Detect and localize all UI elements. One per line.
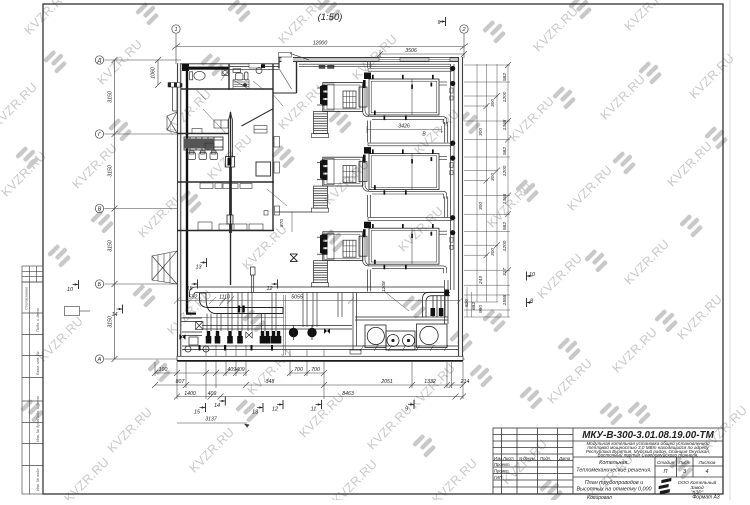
svg-text:300: 300 bbox=[490, 173, 496, 181]
svg-text:1400: 1400 bbox=[184, 391, 196, 397]
svg-text:Дата: Дата bbox=[558, 456, 571, 461]
svg-text:Взам. инв. №: Взам. инв. № bbox=[36, 352, 40, 375]
svg-text:700: 700 bbox=[294, 367, 303, 373]
svg-text:План трубопроводов и: План трубопроводов и bbox=[585, 480, 643, 486]
svg-text:Стадия: Стадия bbox=[657, 460, 675, 465]
svg-text:МКУ-В-300-3.01.08.19.00-ТМ: МКУ-В-300-3.01.08.19.00-ТМ bbox=[582, 430, 714, 441]
svg-text:300: 300 bbox=[490, 99, 496, 107]
svg-text:409: 409 bbox=[208, 391, 217, 397]
svg-text:Восточный портал Северомуйског: Восточный портал Северомуйского тоннеля. bbox=[598, 452, 699, 458]
svg-text:1208: 1208 bbox=[381, 281, 387, 292]
svg-text:2: 2 bbox=[461, 27, 465, 33]
svg-text:3150: 3150 bbox=[108, 165, 114, 177]
svg-text:1368: 1368 bbox=[502, 193, 508, 204]
svg-text:5055: 5055 bbox=[291, 295, 303, 301]
svg-text:980: 980 bbox=[478, 305, 484, 313]
svg-text:Формат А3: Формат А3 bbox=[692, 495, 720, 501]
svg-text:Лист: Лист bbox=[678, 460, 691, 465]
svg-text:15: 15 bbox=[194, 410, 201, 416]
svg-text:Тепломеханические решения.: Тепломеханические решения. bbox=[576, 468, 651, 474]
svg-text:12: 12 bbox=[266, 286, 272, 292]
svg-text:582: 582 bbox=[502, 73, 508, 81]
svg-text:Копировал: Копировал bbox=[587, 495, 612, 500]
svg-text:15: 15 bbox=[186, 286, 193, 292]
svg-text:1200: 1200 bbox=[502, 240, 508, 251]
svg-text:682: 682 bbox=[471, 302, 477, 310]
svg-text:12: 12 bbox=[272, 407, 278, 413]
svg-text:12000: 12000 bbox=[313, 41, 328, 47]
svg-text:3: 3 bbox=[683, 469, 686, 475]
svg-text:409409: 409409 bbox=[227, 367, 244, 373]
svg-text:Подп. и дата: Подп. и дата bbox=[36, 308, 40, 332]
svg-text:3137: 3137 bbox=[205, 417, 218, 423]
svg-text:Инв. № подл.: Инв. № подл. bbox=[36, 467, 40, 491]
svg-text:14: 14 bbox=[214, 403, 220, 409]
svg-text:214: 214 bbox=[460, 379, 470, 385]
svg-text:3506: 3506 bbox=[405, 48, 417, 54]
svg-text:807: 807 bbox=[176, 379, 186, 385]
svg-text:9: 9 bbox=[437, 20, 440, 26]
svg-text:520: 520 bbox=[464, 299, 470, 307]
svg-text:Согласовано: Согласовано bbox=[25, 287, 29, 310]
svg-text:100: 100 bbox=[159, 367, 168, 373]
svg-text:N докум.: N докум. bbox=[519, 456, 536, 461]
svg-text:13: 13 bbox=[252, 410, 259, 416]
svg-text:14: 14 bbox=[111, 312, 117, 318]
svg-text:Листов: Листов bbox=[698, 460, 716, 465]
svg-text:13: 13 bbox=[195, 265, 202, 271]
svg-text:Котельная.: Котельная. bbox=[599, 460, 629, 466]
svg-text:1110: 1110 bbox=[219, 295, 230, 301]
svg-text:582: 582 bbox=[502, 222, 508, 230]
svg-text:300: 300 bbox=[490, 248, 496, 256]
svg-text:1558: 1558 bbox=[502, 294, 508, 305]
svg-text:4: 4 bbox=[706, 469, 709, 475]
svg-text:700: 700 bbox=[311, 367, 320, 373]
svg-text:3150: 3150 bbox=[108, 91, 114, 103]
svg-text:3150: 3150 bbox=[108, 240, 114, 252]
svg-text:Б: Б bbox=[98, 282, 102, 288]
svg-text:10: 10 bbox=[529, 272, 536, 278]
svg-text:1200: 1200 bbox=[502, 91, 508, 102]
svg-text:8463: 8463 bbox=[342, 391, 354, 397]
svg-text:300: 300 bbox=[478, 128, 484, 136]
svg-text:348: 348 bbox=[266, 379, 275, 385]
svg-text:Подп.: Подп. bbox=[540, 456, 551, 461]
svg-text:582: 582 bbox=[502, 147, 508, 155]
svg-text:1200: 1200 bbox=[502, 165, 508, 176]
svg-text:9: 9 bbox=[405, 407, 408, 413]
svg-text:1060: 1060 bbox=[151, 67, 157, 79]
svg-text:П: П bbox=[664, 469, 668, 475]
svg-text:Проект.: Проект. bbox=[494, 462, 511, 467]
svg-text:870: 870 bbox=[279, 219, 285, 227]
svg-text:243: 243 bbox=[478, 276, 484, 285]
svg-text:Провер.: Провер. bbox=[494, 469, 510, 474]
svg-text:Инв. № дубл.: Инв. № дубл. bbox=[36, 419, 40, 442]
svg-text:Подп. и дата: Подп. и дата bbox=[36, 396, 40, 420]
svg-text:Изм.: Изм. bbox=[494, 456, 503, 461]
svg-text:В: В bbox=[98, 207, 102, 213]
svg-text:Высотных на отметку 0,000: Высотных на отметку 0,000 bbox=[576, 487, 651, 493]
svg-text:А: А bbox=[97, 357, 102, 363]
svg-text:552: 552 bbox=[189, 295, 198, 301]
svg-text:317: 317 bbox=[502, 268, 508, 276]
svg-text:1: 1 bbox=[174, 27, 177, 33]
svg-text:3426: 3426 bbox=[398, 124, 410, 130]
svg-text:2051: 2051 bbox=[380, 379, 393, 385]
svg-text:ГИП: ГИП bbox=[494, 475, 503, 480]
svg-text:11: 11 bbox=[311, 407, 317, 413]
svg-text:Д: Д bbox=[97, 58, 102, 64]
svg-text:10: 10 bbox=[67, 287, 74, 293]
svg-text:Лист: Лист bbox=[502, 456, 514, 461]
svg-text:(1:50): (1:50) bbox=[318, 12, 343, 23]
svg-text:300: 300 bbox=[478, 202, 484, 210]
svg-text:1332: 1332 bbox=[424, 379, 436, 385]
svg-text:1368: 1368 bbox=[502, 119, 508, 130]
